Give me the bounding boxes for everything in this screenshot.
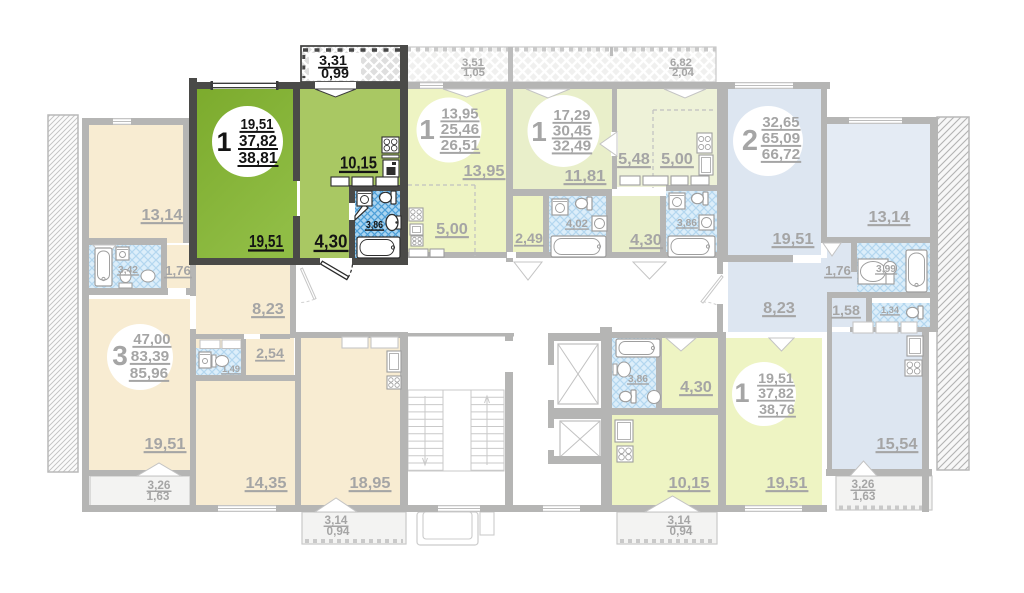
svg-text:19,51: 19,51 (767, 475, 808, 492)
svg-text:1,76: 1,76 (825, 263, 851, 278)
svg-text:13,14: 13,14 (869, 209, 910, 226)
svg-text:3: 3 (112, 340, 128, 371)
svg-text:1,63: 1,63 (147, 491, 170, 503)
svg-text:1,63: 1,63 (853, 491, 876, 503)
svg-text:19,51: 19,51 (773, 231, 814, 248)
svg-text:1: 1 (419, 114, 435, 145)
svg-text:19,51: 19,51 (249, 231, 283, 251)
svg-text:0,94: 0,94 (670, 526, 694, 538)
svg-text:14,35: 14,35 (246, 475, 287, 492)
svg-text:4,30: 4,30 (630, 232, 662, 249)
svg-text:1,76: 1,76 (165, 263, 191, 278)
svg-text:38,81: 38,81 (239, 150, 278, 167)
svg-text:4,02: 4,02 (566, 218, 588, 230)
svg-text:11,81: 11,81 (565, 168, 606, 185)
svg-text:19,51: 19,51 (145, 436, 186, 453)
svg-text:25,46: 25,46 (441, 121, 479, 138)
svg-text:65,09: 65,09 (762, 130, 800, 147)
svg-text:3,26: 3,26 (852, 479, 875, 491)
svg-text:1,05: 1,05 (463, 67, 485, 79)
svg-text:1,58: 1,58 (832, 302, 860, 318)
svg-text:4,30: 4,30 (680, 379, 712, 396)
svg-text:13,14: 13,14 (142, 207, 183, 224)
svg-text:37,82: 37,82 (239, 133, 277, 150)
svg-text:1: 1 (216, 127, 231, 157)
svg-text:1: 1 (734, 378, 749, 408)
svg-text:2: 2 (742, 125, 758, 157)
svg-text:26,51: 26,51 (441, 137, 479, 154)
svg-text:5,00: 5,00 (661, 151, 693, 168)
svg-text:5,00: 5,00 (436, 221, 468, 238)
svg-text:0,99: 0,99 (321, 65, 349, 81)
svg-text:85,96: 85,96 (130, 365, 168, 382)
svg-text:37,82: 37,82 (758, 385, 794, 401)
svg-text:1,49: 1,49 (222, 364, 240, 374)
svg-text:38,76: 38,76 (759, 401, 795, 417)
svg-text:83,39: 83,39 (131, 348, 169, 365)
svg-text:32,65: 32,65 (762, 115, 799, 131)
svg-text:1,34: 1,34 (881, 305, 899, 315)
svg-text:4,30: 4,30 (315, 232, 348, 252)
svg-text:13,95: 13,95 (464, 163, 505, 180)
svg-text:32,49: 32,49 (553, 138, 591, 155)
svg-text:1: 1 (531, 116, 547, 147)
svg-text:10,15: 10,15 (669, 475, 710, 492)
svg-text:66,72: 66,72 (762, 146, 800, 163)
svg-text:19,51: 19,51 (241, 116, 274, 133)
svg-text:2,49: 2,49 (515, 230, 543, 246)
svg-text:8,23: 8,23 (252, 301, 284, 318)
svg-text:8,23: 8,23 (763, 300, 795, 317)
svg-text:2,54: 2,54 (256, 345, 284, 361)
svg-text:18,95: 18,95 (350, 475, 391, 492)
svg-text:5,48: 5,48 (618, 151, 650, 168)
svg-text:15,54: 15,54 (877, 436, 918, 453)
svg-text:0,94: 0,94 (327, 526, 351, 538)
svg-text:10,15: 10,15 (340, 153, 377, 173)
svg-text:47,00: 47,00 (133, 332, 170, 348)
svg-text:2,04: 2,04 (672, 67, 695, 79)
svg-text:19,51: 19,51 (758, 370, 794, 386)
svg-text:3,86: 3,86 (366, 219, 383, 231)
